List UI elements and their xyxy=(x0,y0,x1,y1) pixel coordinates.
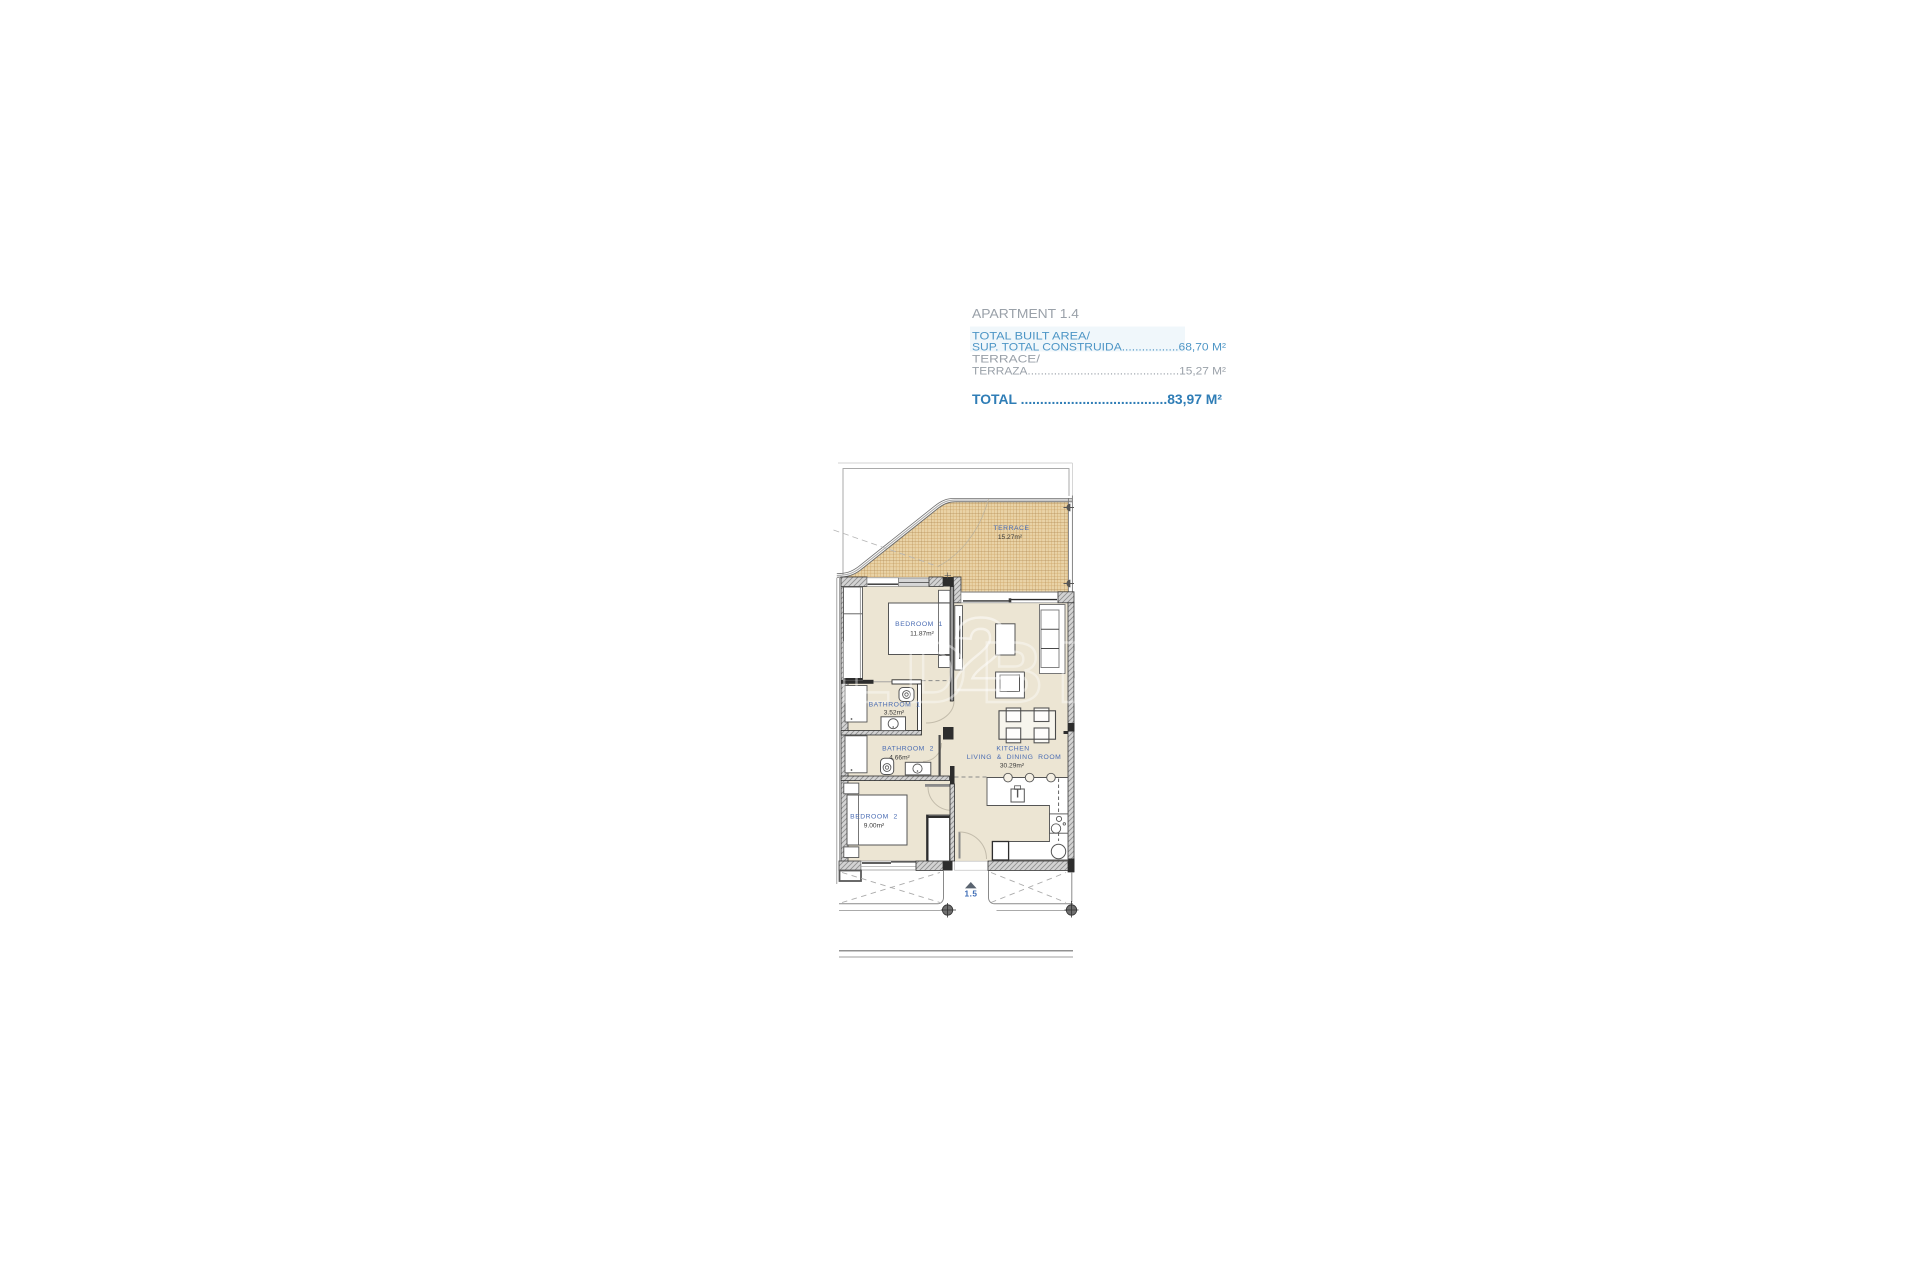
svg-text:LIVING & DINING ROOM: LIVING & DINING ROOM xyxy=(967,754,1062,761)
svg-text:30.29m²: 30.29m² xyxy=(1000,763,1025,770)
svg-text:TERRACE: TERRACE xyxy=(994,525,1030,532)
svg-text:TERRAZA.......................: TERRAZA.................................… xyxy=(972,366,1226,378)
svg-text:BATHROOM 2: BATHROOM 2 xyxy=(882,746,934,753)
svg-text:BEDROOM 1: BEDROOM 1 xyxy=(895,621,943,628)
svg-text:KITCHEN: KITCHEN xyxy=(996,746,1029,753)
svg-text:BATHROOM 1: BATHROOM 1 xyxy=(869,702,921,709)
svg-text:4.66m²: 4.66m² xyxy=(889,755,910,762)
svg-text:3.52m²: 3.52m² xyxy=(884,710,905,717)
svg-text:11.87m²: 11.87m² xyxy=(910,631,935,638)
svg-text:1.5: 1.5 xyxy=(965,890,978,899)
svg-text:9.00m²: 9.00m² xyxy=(864,823,885,830)
svg-text:15.27m²: 15.27m² xyxy=(998,534,1023,541)
svg-text:APARTMENT 1.4: APARTMENT 1.4 xyxy=(972,307,1079,321)
svg-text:TERRACE/: TERRACE/ xyxy=(972,354,1041,366)
svg-text:TOTAL ........................: TOTAL ..................................… xyxy=(972,392,1222,407)
svg-text:GOLDBRICK: GOLDBRICK xyxy=(677,625,1324,721)
svg-text:BEDROOM 2: BEDROOM 2 xyxy=(850,814,898,821)
svg-text:SUP. TOTAL CONSTRUIDA.........: SUP. TOTAL CONSTRUIDA.................68… xyxy=(972,342,1226,354)
